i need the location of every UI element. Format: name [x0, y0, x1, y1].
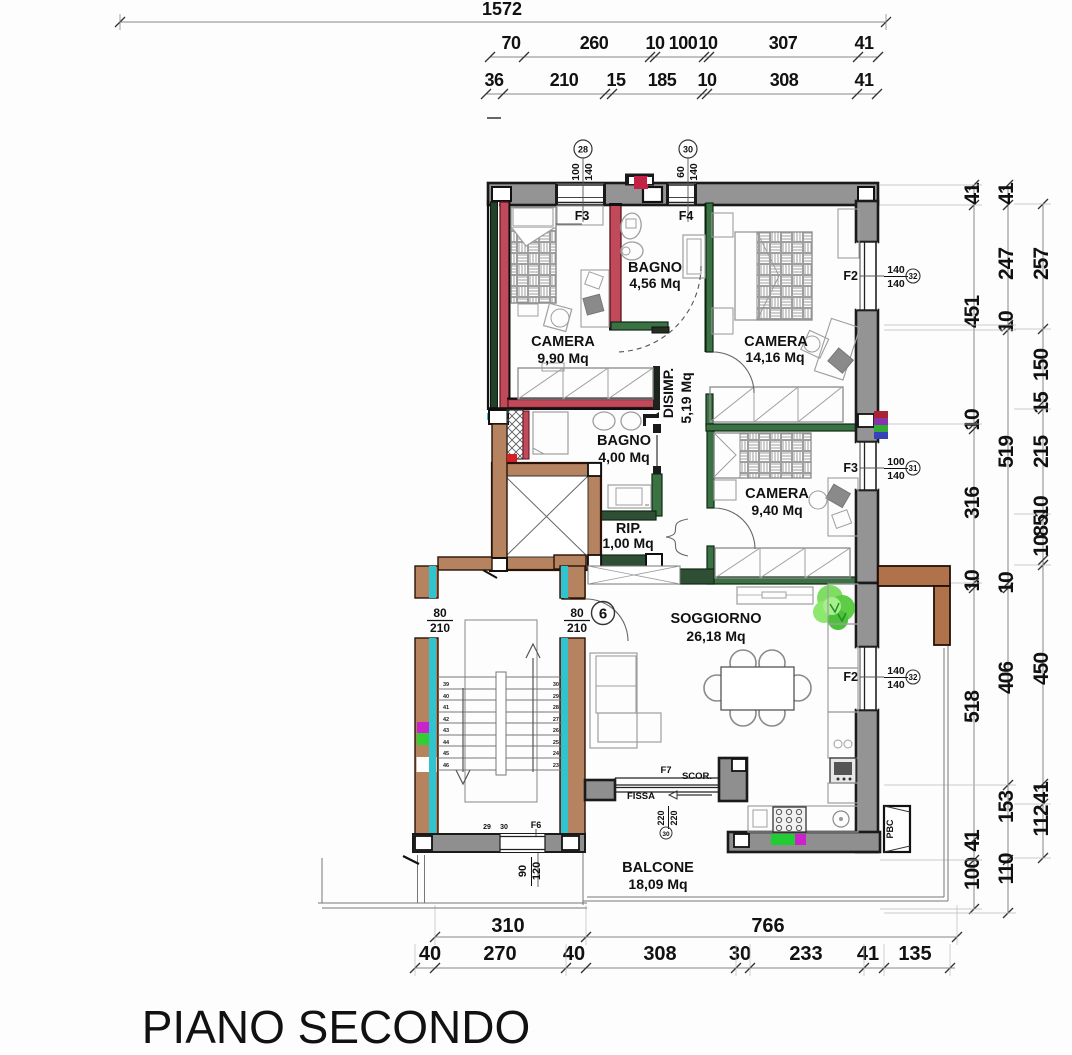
- svg-text:140: 140: [887, 278, 905, 290]
- svg-text:39: 39: [443, 682, 449, 688]
- svg-text:30: 30: [683, 145, 693, 155]
- svg-text:SCOR.: SCOR.: [682, 771, 712, 782]
- svg-text:CAMERA: CAMERA: [745, 486, 809, 502]
- svg-text:9,90 Mq: 9,90 Mq: [537, 350, 588, 366]
- svg-text:SOGGIORNO: SOGGIORNO: [670, 611, 761, 627]
- svg-text:30: 30: [553, 682, 559, 688]
- svg-text:10: 10: [961, 570, 984, 592]
- svg-text:310: 310: [491, 915, 524, 937]
- svg-text:247: 247: [995, 248, 1018, 280]
- svg-text:519: 519: [995, 436, 1018, 468]
- svg-text:28: 28: [578, 145, 588, 155]
- svg-text:10: 10: [995, 311, 1018, 333]
- svg-text:PIANO SECONDO: PIANO SECONDO: [142, 1001, 531, 1050]
- svg-text:140: 140: [688, 163, 700, 181]
- svg-text:10: 10: [697, 70, 717, 90]
- svg-text:36: 36: [484, 70, 504, 90]
- svg-text:153: 153: [995, 791, 1018, 823]
- svg-text:14,16 Mq: 14,16 Mq: [745, 349, 804, 365]
- svg-text:BAGNO: BAGNO: [597, 433, 651, 449]
- svg-text:24: 24: [553, 751, 560, 757]
- svg-text:32: 32: [909, 272, 918, 281]
- svg-text:140: 140: [887, 470, 905, 482]
- svg-text:30: 30: [662, 831, 670, 838]
- svg-text:85: 85: [1030, 514, 1053, 537]
- svg-text:140: 140: [887, 679, 905, 691]
- svg-text:270: 270: [483, 943, 516, 965]
- svg-text:308: 308: [643, 943, 676, 965]
- svg-text:257: 257: [1030, 248, 1053, 280]
- svg-text:10: 10: [698, 33, 718, 53]
- svg-text:60: 60: [675, 166, 687, 178]
- svg-text:766: 766: [751, 915, 784, 937]
- svg-text:100: 100: [961, 858, 984, 890]
- svg-text:10: 10: [995, 572, 1018, 594]
- svg-text:41: 41: [854, 70, 874, 90]
- svg-text:100: 100: [669, 33, 698, 53]
- svg-text:28: 28: [553, 705, 559, 711]
- svg-text:406: 406: [995, 662, 1018, 694]
- svg-text:215: 215: [1030, 435, 1053, 468]
- svg-text:46: 46: [443, 763, 449, 769]
- svg-text:185: 185: [648, 70, 677, 90]
- svg-text:10: 10: [645, 33, 665, 53]
- svg-text:41: 41: [961, 829, 984, 852]
- svg-text:100: 100: [570, 163, 582, 181]
- svg-text:25: 25: [553, 740, 559, 746]
- svg-text:70: 70: [501, 33, 521, 53]
- svg-text:PBC: PBC: [885, 819, 895, 839]
- svg-text:90: 90: [517, 865, 529, 877]
- svg-text:41: 41: [857, 943, 879, 965]
- svg-text:451: 451: [961, 295, 984, 328]
- svg-text:F3: F3: [575, 209, 590, 223]
- svg-text:1572: 1572: [482, 0, 522, 19]
- svg-text:518: 518: [961, 690, 984, 723]
- svg-text:10: 10: [1030, 496, 1053, 518]
- svg-text:112: 112: [1030, 805, 1053, 836]
- svg-text:308: 308: [770, 70, 799, 90]
- svg-text:41: 41: [854, 33, 874, 53]
- svg-text:220: 220: [669, 810, 679, 825]
- svg-text:40: 40: [419, 943, 441, 965]
- svg-text:210: 210: [430, 621, 450, 635]
- svg-text:26: 26: [553, 728, 559, 734]
- svg-text:9,40 Mq: 9,40 Mq: [751, 502, 802, 518]
- svg-text:18,09 Mq: 18,09 Mq: [628, 876, 687, 892]
- svg-text:5,19 Mq: 5,19 Mq: [678, 372, 694, 423]
- svg-text:27: 27: [553, 717, 559, 723]
- svg-text:10: 10: [1030, 535, 1053, 557]
- svg-text:F4: F4: [679, 209, 694, 223]
- svg-text:15: 15: [606, 70, 626, 90]
- svg-text:F6: F6: [531, 820, 542, 830]
- svg-text:6: 6: [599, 606, 607, 623]
- svg-text:140: 140: [583, 163, 595, 181]
- svg-text:135: 135: [898, 943, 931, 965]
- svg-text:FISSA: FISSA: [627, 791, 655, 802]
- svg-text:140: 140: [887, 665, 905, 677]
- svg-text:150: 150: [1030, 349, 1053, 381]
- svg-text:220: 220: [656, 810, 666, 825]
- svg-text:30: 30: [729, 943, 751, 965]
- svg-text:43: 43: [443, 728, 449, 734]
- svg-text:4,56 Mq: 4,56 Mq: [629, 275, 680, 291]
- svg-text:CAMERA: CAMERA: [531, 334, 595, 350]
- svg-text:80: 80: [570, 606, 584, 620]
- svg-text:10: 10: [961, 409, 984, 431]
- svg-text:41: 41: [443, 705, 449, 711]
- svg-text:450: 450: [1030, 653, 1053, 685]
- svg-text:26,18 Mq: 26,18 Mq: [686, 628, 745, 644]
- svg-text:1,00 Mq: 1,00 Mq: [602, 535, 653, 551]
- svg-text:F2: F2: [843, 670, 858, 684]
- svg-text:40: 40: [443, 694, 449, 700]
- svg-text:80: 80: [433, 606, 447, 620]
- svg-text:100: 100: [887, 456, 905, 468]
- svg-text:41: 41: [961, 182, 984, 205]
- svg-text:F7: F7: [660, 765, 671, 776]
- svg-text:30: 30: [500, 824, 508, 831]
- svg-text:120: 120: [531, 862, 543, 880]
- svg-text:CAMERA: CAMERA: [744, 334, 808, 350]
- svg-text:307: 307: [769, 33, 798, 53]
- svg-text:140: 140: [887, 264, 905, 276]
- svg-text:316: 316: [961, 487, 984, 519]
- svg-text:F2: F2: [843, 269, 858, 283]
- svg-text:41: 41: [1030, 781, 1053, 804]
- svg-text:BALCONE: BALCONE: [622, 860, 694, 876]
- svg-text:45: 45: [443, 751, 449, 757]
- svg-text:210: 210: [550, 70, 579, 90]
- svg-text:41: 41: [995, 182, 1018, 205]
- svg-text:42: 42: [443, 717, 449, 723]
- svg-text:F3: F3: [843, 461, 858, 475]
- svg-text:BAGNO: BAGNO: [628, 260, 682, 276]
- svg-text:32: 32: [909, 673, 918, 682]
- svg-text:29: 29: [483, 824, 491, 831]
- svg-text:29: 29: [553, 694, 559, 700]
- svg-text:210: 210: [567, 621, 587, 635]
- svg-text:260: 260: [580, 33, 609, 53]
- svg-text:233: 233: [789, 943, 822, 965]
- svg-text:23: 23: [553, 763, 559, 769]
- svg-text:4,00 Mq: 4,00 Mq: [598, 449, 649, 465]
- svg-text:DISIMP.: DISIMP.: [660, 368, 676, 418]
- svg-text:31: 31: [909, 464, 918, 473]
- svg-text:15: 15: [1030, 391, 1053, 414]
- svg-text:44: 44: [443, 740, 450, 746]
